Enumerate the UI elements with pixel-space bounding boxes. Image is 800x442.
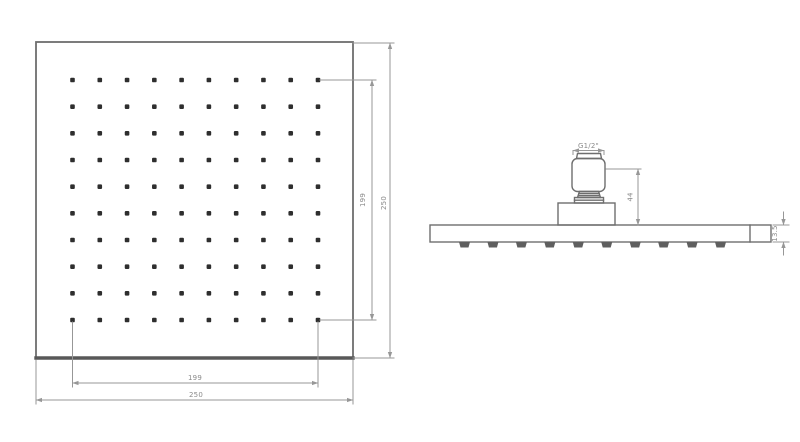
nozzle-dot [288, 238, 293, 243]
nozzle-dot [125, 131, 130, 136]
nozzle-dot [261, 211, 266, 216]
nozzle-dot [70, 264, 75, 269]
nozzle-dot [288, 104, 293, 109]
nozzle-dot [125, 264, 130, 269]
nozzle-stub [459, 242, 470, 248]
dim-plate-thickness: 13.5 [771, 212, 789, 255]
nozzle-dot [234, 184, 239, 189]
nozzle-dot [261, 264, 266, 269]
nozzle-dot [152, 104, 157, 109]
nozzle-dot [261, 104, 266, 109]
nozzle-dot [207, 264, 212, 269]
nozzle-dot [207, 158, 212, 163]
nozzle-dot [207, 238, 212, 243]
nozzle-dot [70, 291, 75, 296]
nozzle-dot [234, 104, 239, 109]
nozzle-stub [487, 242, 498, 248]
nozzle-dot [70, 158, 75, 163]
nozzle-dot [288, 184, 293, 189]
nozzle-dot [125, 211, 130, 216]
inlet-lip [577, 154, 602, 159]
nozzle-dot [97, 238, 102, 243]
nozzle-dot [125, 238, 130, 243]
nozzle-dot [70, 211, 75, 216]
nozzle-dot [97, 131, 102, 136]
nozzle-dot [316, 131, 321, 136]
nozzle-dot [125, 318, 130, 323]
dim-height-inner: 199 [320, 80, 376, 320]
nozzle-dot [234, 238, 239, 243]
nozzle-dot [179, 264, 184, 269]
nozzle-dot [316, 104, 321, 109]
nozzle-dot [125, 104, 130, 109]
nozzle-dot [261, 291, 266, 296]
side-view: G1/2" 44 13.5 [430, 142, 789, 255]
nozzle-dot [179, 104, 184, 109]
nozzle-dot [152, 264, 157, 269]
nozzle-dot [97, 78, 102, 83]
nozzle-stub [573, 242, 584, 248]
nozzle-dot [234, 291, 239, 296]
nozzle-dot [179, 318, 184, 323]
nozzle-dot [152, 131, 157, 136]
faceplate-outline [36, 42, 353, 358]
dim-height-outer-label: 250 [380, 196, 388, 210]
plate-side-outline [430, 225, 771, 242]
nozzle-dot [288, 78, 293, 83]
nozzle-dot [152, 318, 157, 323]
nozzle-dot [234, 264, 239, 269]
dim-thread-label: G1/2" [578, 142, 599, 150]
nozzle-dot [125, 158, 130, 163]
nozzle-stub [715, 242, 726, 248]
nozzle-dot [316, 291, 321, 296]
drawing-svg: 199 250 199 250 [0, 0, 800, 442]
nozzle-dot [288, 158, 293, 163]
nozzle-dot [97, 158, 102, 163]
dim-plate-thickness-label: 13.5 [771, 225, 779, 241]
nozzle-dot [70, 78, 75, 83]
nozzle-dot [207, 211, 212, 216]
nozzle-dot [97, 104, 102, 109]
nozzle-dot [152, 184, 157, 189]
nozzle-dot [179, 131, 184, 136]
nozzle-dot [316, 184, 321, 189]
nozzle-dot [125, 291, 130, 296]
nozzle-dot [70, 104, 75, 109]
nozzle-dot [316, 264, 321, 269]
nozzle-dot-grid [70, 78, 320, 323]
nozzle-dot [288, 131, 293, 136]
dim-width-inner: 199 [73, 322, 319, 387]
nozzle-stub [658, 242, 669, 248]
nozzle-dot [152, 291, 157, 296]
nozzle-dot [316, 238, 321, 243]
nozzle-dot [288, 211, 293, 216]
nozzle-dot [97, 211, 102, 216]
nozzle-dot [70, 238, 75, 243]
nozzle-dot [179, 158, 184, 163]
nozzle-dot [179, 291, 184, 296]
nozzle-dot [316, 211, 321, 216]
nozzle-dot [234, 131, 239, 136]
nozzle-dot [234, 211, 239, 216]
connector-base-block [558, 203, 615, 225]
nozzle-dot [288, 291, 293, 296]
nozzle-dot [207, 291, 212, 296]
nozzle-stub [516, 242, 527, 248]
nozzle-dot [261, 184, 266, 189]
nozzle-stub [601, 242, 612, 248]
nozzle-dot [125, 184, 130, 189]
nozzle-dot [97, 264, 102, 269]
nozzle-dot [207, 78, 212, 83]
nozzle-stub [630, 242, 641, 248]
nozzle-dot [207, 184, 212, 189]
dim-width-outer: 250 [36, 360, 353, 404]
dim-height-inner-label: 199 [359, 193, 367, 207]
nozzle-dot [70, 184, 75, 189]
dim-width-outer-label: 250 [189, 391, 203, 399]
nozzle-dot [207, 318, 212, 323]
dim-connector-height-label: 44 [627, 192, 635, 202]
nozzle-dot [152, 238, 157, 243]
nozzle-dot [152, 211, 157, 216]
nozzle-dot [179, 184, 184, 189]
nozzle-dot [261, 238, 266, 243]
nozzle-dot [125, 78, 130, 83]
nozzle-dot [207, 104, 212, 109]
nozzle-stub [544, 242, 555, 248]
nozzle-dot [261, 78, 266, 83]
nozzle-dot [234, 318, 239, 323]
nozzle-dot [97, 318, 102, 323]
nozzle-dot [97, 184, 102, 189]
nozzle-dot [152, 78, 157, 83]
nozzle-dot [288, 264, 293, 269]
dim-connector-height: 44 [606, 169, 641, 225]
nozzle-dot [207, 131, 212, 136]
nozzle-dot [152, 158, 157, 163]
dim-thread: G1/2" [573, 142, 604, 155]
nozzle-dot [234, 78, 239, 83]
connector-neck [578, 192, 601, 198]
nozzle-dot [97, 291, 102, 296]
nozzle-dot [288, 318, 293, 323]
nozzle-dot [179, 211, 184, 216]
swivel-nut [572, 159, 605, 192]
nozzle-stub [687, 242, 698, 248]
nozzle-dot [179, 78, 184, 83]
technical-drawing-page: 199 250 199 250 [0, 0, 800, 442]
nozzle-dot [179, 238, 184, 243]
nozzle-dot [70, 131, 75, 136]
nozzle-dot [316, 158, 321, 163]
nozzle-stub-row [459, 242, 726, 248]
nozzle-dot [234, 158, 239, 163]
nozzle-dot [261, 131, 266, 136]
nozzle-dot [261, 318, 266, 323]
nozzle-dot [261, 158, 266, 163]
front-view: 199 250 199 250 [36, 42, 394, 404]
dim-width-inner-label: 199 [188, 374, 202, 382]
